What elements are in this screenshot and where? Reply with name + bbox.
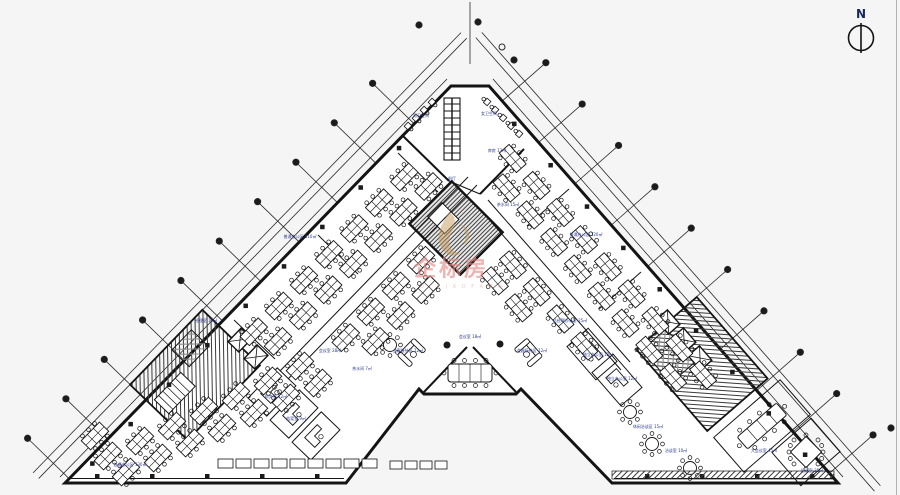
compass-icon <box>849 23 874 53</box>
watermark-text: 企标房 <box>413 256 489 282</box>
room-label: 普通办公区 130㎡ <box>114 461 147 467</box>
room-label: 男卫生间 <box>413 112 429 118</box>
room-label: 库房 13㎡ <box>488 147 506 153</box>
room-label: 独立办公室 12㎡ <box>607 375 637 381</box>
room-label: 前厅 <box>448 175 456 181</box>
room-label: 独立办公室 12㎡ <box>583 351 613 357</box>
room-label: 茶水间 15㎡ <box>497 201 519 207</box>
room-label: 普通办公区 110㎡ <box>284 233 317 239</box>
room-label: 会客接待区 12㎡ <box>517 347 547 353</box>
room-label: 会议室 18㎡ <box>459 333 481 339</box>
room-label: 财务室 12㎡ <box>265 393 287 399</box>
north-compass: N <box>849 7 874 53</box>
room-label: 洽谈室 10㎡ <box>665 447 687 453</box>
room-label: 经理室 15㎡ <box>195 317 217 323</box>
room-label: 普通办公区 120㎡ <box>570 231 603 237</box>
room-label: 培训室 35㎡ <box>801 467 823 473</box>
floor-plan-page: 男卫生间女卫生间库房 13㎡茶水间 15㎡前厅普通办公区 110㎡普通办公区 1… <box>0 0 900 495</box>
stair-icon <box>444 98 460 160</box>
room-label: 档案室 9㎡ <box>286 415 306 421</box>
room-label: 休闲洽谈区 15㎡ <box>633 423 663 429</box>
room-label: 会客接待区 12㎡ <box>393 347 423 353</box>
room-label: 大会议室 45㎡ <box>751 447 777 453</box>
room-label: 茶水间 7㎡ <box>352 365 372 371</box>
floor-plan-drawing: 男卫生间女卫生间库房 13㎡茶水间 15㎡前厅普通办公区 110㎡普通办公区 1… <box>0 0 900 495</box>
room-label: 女卫生间 <box>481 110 497 116</box>
room-label: 会议室 28㎡ <box>319 347 341 353</box>
room-label: 总经理办公室 25㎡ <box>553 317 587 323</box>
watermark-subtext: Q I B I A O F A N G <box>420 284 504 290</box>
north-label: N <box>856 7 866 21</box>
